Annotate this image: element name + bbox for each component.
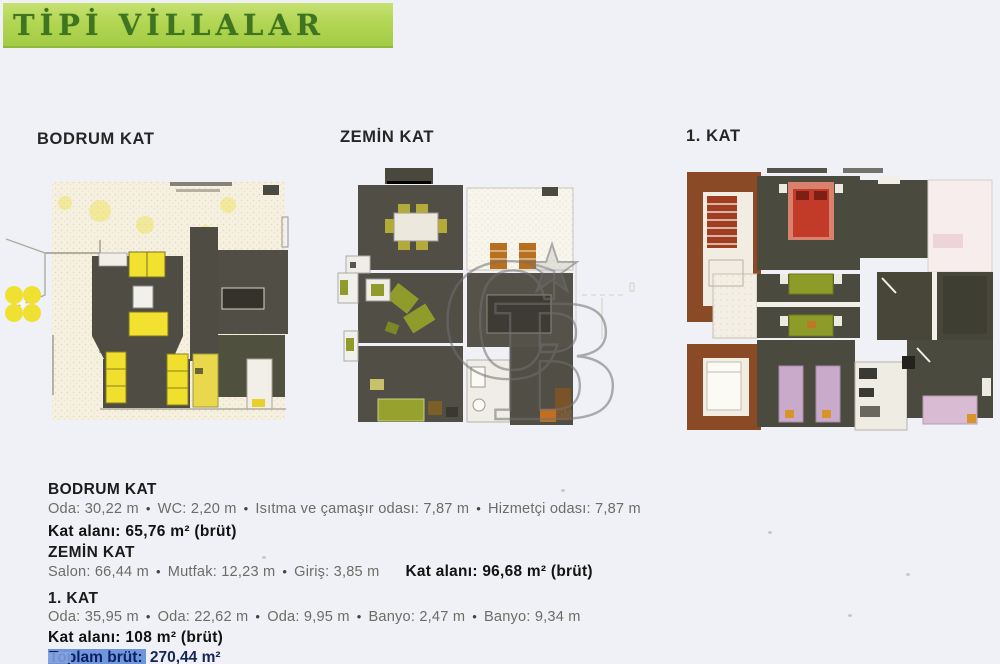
section-heading-bodrum: BODRUM KAT (48, 481, 157, 499)
scan-speck (848, 614, 852, 617)
title-banner: TİPİ VİLLALAR (3, 3, 393, 48)
bullet-separator: • (357, 609, 362, 624)
room-measurement: Isıtma ve çamaşır odası: 7,87 m (255, 501, 469, 517)
green-bed (789, 274, 833, 294)
top-wall-mark (176, 189, 220, 192)
floor-area-1kat: Kat alanı: 108 m² (brüt) (48, 629, 223, 647)
scan-speck (262, 556, 266, 559)
scanned-brochure-page: TİPİ VİLLALAR BODRUM KAT ZEMİN KAT 1. KA… (0, 0, 1000, 664)
page-title: TİPİ VİLLALAR (3, 8, 325, 42)
selection-artifact (48, 652, 71, 663)
bullet-separator: • (472, 609, 477, 624)
bed-outline (707, 362, 741, 410)
stair-hall (713, 274, 757, 338)
room-measurement: Hizmetçi odası: 7,87 m (488, 501, 641, 517)
floorplan-1-kat (683, 160, 995, 432)
green-sofa (378, 399, 424, 421)
floorplan-bodrum-kat (0, 163, 300, 433)
bedroom-top-right (860, 180, 928, 258)
wardrobe (106, 352, 126, 403)
laundry-room (193, 354, 218, 407)
watermark-letter-b: B (488, 272, 622, 441)
bullet-separator: • (244, 501, 249, 516)
bullet-separator: • (476, 501, 481, 516)
section-heading-1kat: 1. KAT (48, 590, 98, 608)
pink-room (928, 180, 992, 272)
top-wall-mark (170, 182, 232, 186)
room-measurement: Salon: 66,44 m (48, 564, 149, 580)
room-measurement: Oda: 9,95 m (267, 609, 350, 625)
table (133, 286, 153, 308)
total-gross-value: 270,44 m² (146, 649, 221, 664)
bullet-separator: • (255, 609, 260, 624)
dining-table (394, 213, 438, 241)
bullet-separator: • (156, 564, 161, 579)
room-measurement: Mutfak: 12,23 m (168, 564, 276, 580)
scan-speck (906, 573, 910, 576)
plan-label-bodrum-kat: BODRUM KAT (37, 130, 155, 149)
floor-area-zemin: Kat alanı: 96,68 m² (brüt) (405, 563, 592, 580)
room-measurement: Banyo: 9,34 m (484, 609, 581, 625)
garden-flower (5, 286, 41, 322)
room-measurement: Oda: 30,22 m (48, 501, 139, 517)
rooms-line-zemin: Salon: 66,44 m•Mutfak: 12,23 m•Giriş: 3,… (48, 563, 593, 581)
floorplan-bodrum-drawing (0, 163, 300, 433)
watermark-service-mark: SM (556, 408, 573, 420)
room-measurement: Oda: 22,62 m (158, 609, 249, 625)
rooms-line-bodrum: Oda: 30,22 m•WC: 2,20 m•Isıtma ve çamaşı… (48, 501, 641, 517)
room-measurement: Giriş: 3,85 m (294, 564, 379, 580)
total-gross-area-line: Toplam brüt: 270,44 m² (48, 649, 221, 664)
bullet-separator: • (146, 609, 151, 624)
plan-label-1-kat: 1. KAT (686, 127, 741, 146)
yellow-sofa (129, 312, 168, 336)
section-heading-zemin: ZEMİN KAT (48, 544, 135, 562)
bullet-separator: • (282, 564, 287, 579)
watermark-cb-logo: C B SM (436, 226, 636, 441)
room-measurement: Banyo: 2,47 m (368, 609, 465, 625)
floorplan-kat1-drawing (683, 160, 995, 432)
scan-speck (561, 489, 565, 492)
wardrobe (167, 354, 188, 405)
room-measurement: WC: 2,20 m (158, 501, 237, 517)
room-measurement: Oda: 35,95 m (48, 609, 139, 625)
cabinet (99, 253, 127, 266)
bullet-separator: • (146, 501, 151, 516)
scan-speck (768, 531, 772, 534)
floor-area-bodrum: Kat alanı: 65,76 m² (brüt) (48, 523, 237, 541)
dark-table (222, 288, 264, 309)
rooms-line-1kat: Oda: 35,95 m•Oda: 22,62 m•Oda: 9,95 m•Ba… (48, 609, 581, 625)
plan-label-zemin-kat: ZEMİN KAT (340, 128, 434, 147)
